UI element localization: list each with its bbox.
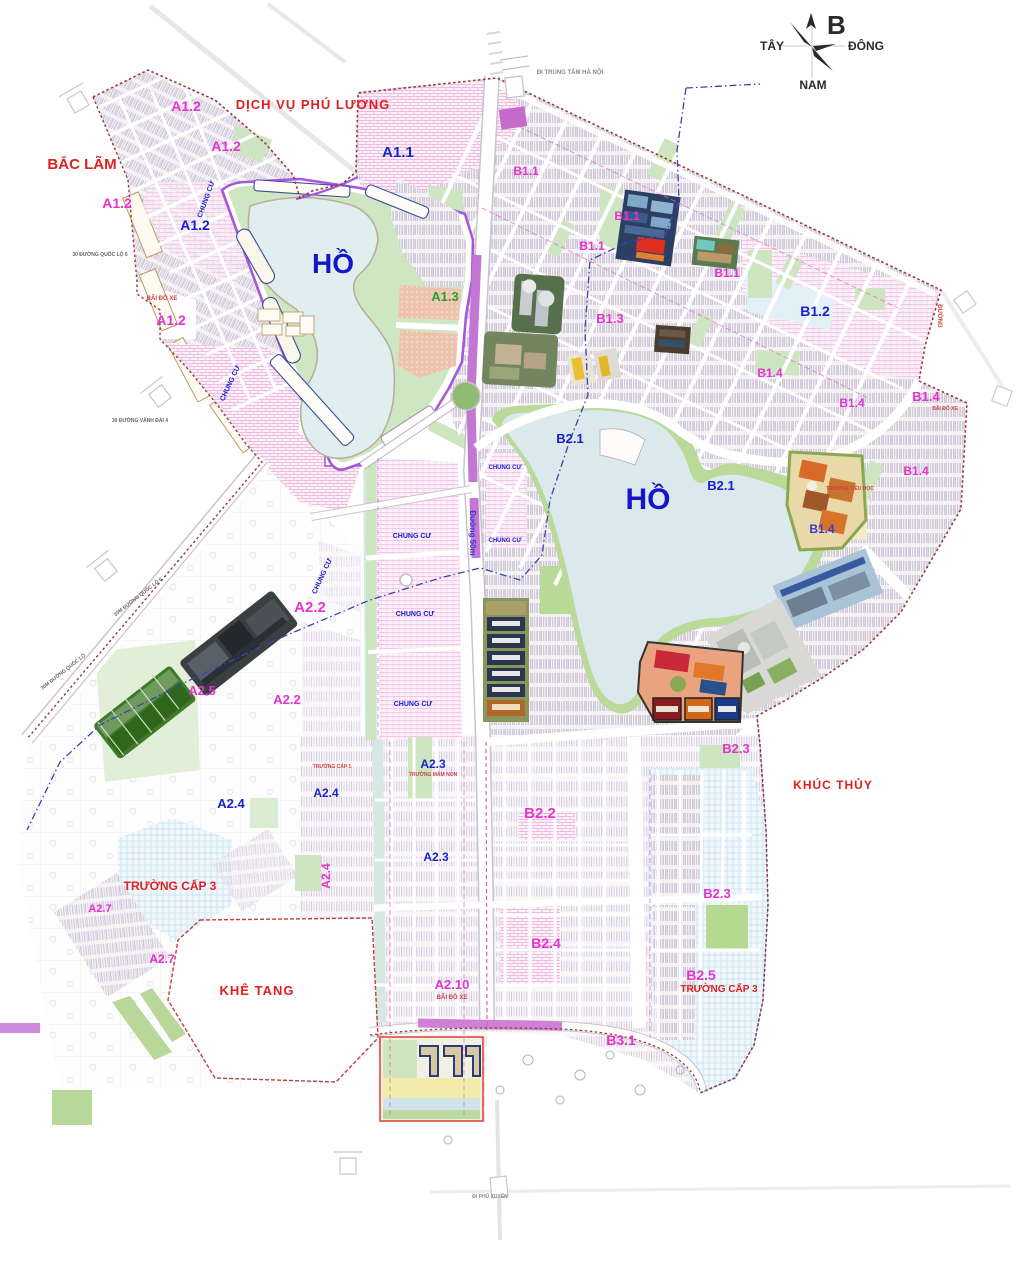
svg-text:CHUNG CƯ: CHUNG CƯ xyxy=(489,465,522,471)
svg-text:A1.2: A1.2 xyxy=(156,312,186,328)
svg-text:A2.5: A2.5 xyxy=(188,683,215,698)
svg-text:ĐƯỜNG: ĐƯỜNG xyxy=(936,304,944,328)
svg-text:B1.3: B1.3 xyxy=(596,311,623,326)
svg-text:B1.2: B1.2 xyxy=(800,303,830,319)
svg-text:ĐI TRUNG TÂM HÀ NỘI: ĐI TRUNG TÂM HÀ NỘI xyxy=(537,68,604,76)
svg-text:HỒ: HỒ xyxy=(626,482,671,516)
svg-text:B1.1: B1.1 xyxy=(614,209,640,223)
svg-text:CHUNG CƯ: CHUNG CƯ xyxy=(393,533,432,540)
svg-text:CHUNG CƯ: CHUNG CƯ xyxy=(396,611,435,618)
svg-text:ĐÔNG: ĐÔNG xyxy=(848,38,884,53)
svg-text:B1.4: B1.4 xyxy=(903,464,929,478)
svg-text:BẮC LÃM: BẮC LÃM xyxy=(47,155,116,173)
svg-text:B2.3: B2.3 xyxy=(703,886,730,901)
svg-text:B2.1: B2.1 xyxy=(556,431,583,446)
svg-text:TÂY: TÂY xyxy=(760,38,784,53)
svg-text:BÃI ĐỖ XE: BÃI ĐỖ XE xyxy=(147,295,178,302)
svg-text:TRƯỜNG CẤP 3: TRƯỜNG CẤP 3 xyxy=(680,982,758,995)
svg-text:DỊCH VỤ PHÚ LƯƠNG: DỊCH VỤ PHÚ LƯƠNG xyxy=(236,97,390,112)
svg-text:TRƯỜNG CẤP 3: TRƯỜNG CẤP 3 xyxy=(124,878,217,893)
svg-text:BÃI ĐỖ XE: BÃI ĐỖ XE xyxy=(932,405,958,412)
svg-text:A1.1: A1.1 xyxy=(382,144,414,161)
svg-text:B1.1: B1.1 xyxy=(579,239,605,253)
svg-text:TRƯỜNG CẤP 1: TRƯỜNG CẤP 1 xyxy=(313,762,352,770)
svg-text:CHUNG CƯ: CHUNG CƯ xyxy=(489,538,522,544)
svg-text:B1.4: B1.4 xyxy=(912,389,940,404)
svg-text:A2.4: A2.4 xyxy=(217,796,245,811)
svg-text:B1.4: B1.4 xyxy=(757,366,783,380)
svg-text:CHUNG CƯ: CHUNG CƯ xyxy=(394,701,433,708)
svg-text:30 ĐƯỜNG QUỐC LỘ 6: 30 ĐƯỜNG QUỐC LỘ 6 xyxy=(72,250,128,258)
svg-text:ĐI PHÚ XUYÊN: ĐI PHÚ XUYÊN xyxy=(472,1192,508,1200)
svg-text:A2.2: A2.2 xyxy=(273,692,300,707)
svg-text:B2.2: B2.2 xyxy=(524,805,556,822)
svg-text:B3.1: B3.1 xyxy=(606,1032,636,1048)
svg-text:A2.7: A2.7 xyxy=(88,903,111,915)
svg-text:A2.3: A2.3 xyxy=(420,757,446,771)
svg-text:B2.3: B2.3 xyxy=(722,741,749,756)
svg-text:B1.4: B1.4 xyxy=(809,522,835,536)
svg-text:B1.1: B1.1 xyxy=(513,164,539,178)
svg-text:A2.4: A2.4 xyxy=(319,863,333,889)
svg-text:B2.1: B2.1 xyxy=(707,478,734,493)
svg-text:TRƯỜNG MẦM NON: TRƯỜNG MẦM NON xyxy=(409,770,458,778)
svg-text:A2.7: A2.7 xyxy=(149,952,175,966)
svg-text:A1.2: A1.2 xyxy=(180,217,210,233)
svg-text:TRƯỜNG TIỂU HỌC: TRƯỜNG TIỂU HỌC xyxy=(826,484,874,492)
svg-text:B2.4: B2.4 xyxy=(531,935,561,951)
svg-text:A2.10: A2.10 xyxy=(435,977,470,992)
svg-text:30 ĐƯỜNG VÀNH ĐAI 4: 30 ĐƯỜNG VÀNH ĐAI 4 xyxy=(112,416,168,424)
svg-text:KHÊ TANG: KHÊ TANG xyxy=(220,983,295,998)
svg-text:A2.3: A2.3 xyxy=(423,850,449,864)
svg-text:B2.5: B2.5 xyxy=(686,967,716,983)
svg-text:B1.1: B1.1 xyxy=(714,266,740,280)
svg-text:B: B xyxy=(827,10,846,40)
svg-text:A1.2: A1.2 xyxy=(211,138,241,154)
svg-text:A2.4: A2.4 xyxy=(313,786,339,800)
svg-text:NAM: NAM xyxy=(799,78,826,92)
svg-text:BÃI ĐỖ XE: BÃI ĐỖ XE xyxy=(437,994,468,1001)
svg-text:HỒ: HỒ xyxy=(312,248,354,279)
svg-text:B1.4: B1.4 xyxy=(839,396,865,410)
svg-text:A2.2: A2.2 xyxy=(294,599,326,616)
svg-text:Đường 50m: Đường 50m xyxy=(468,510,477,555)
svg-text:A1.2: A1.2 xyxy=(171,98,201,114)
svg-text:A1.2: A1.2 xyxy=(102,195,132,211)
svg-text:KHÚC THỦY: KHÚC THỦY xyxy=(793,777,873,792)
svg-text:A1.3: A1.3 xyxy=(431,289,458,304)
